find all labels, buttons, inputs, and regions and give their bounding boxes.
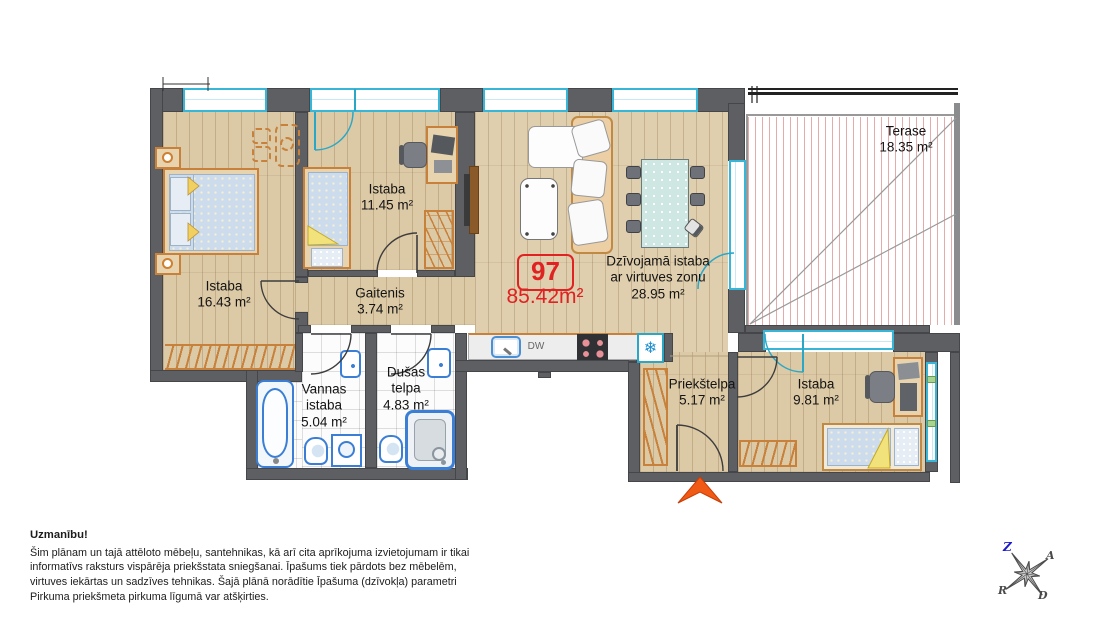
apartment-total-area: 85.42m²	[506, 285, 583, 309]
room-area: 3.74 m²	[355, 302, 405, 318]
washer-drum-icon	[338, 441, 355, 458]
mattress	[827, 428, 891, 466]
lamp-icon	[162, 152, 173, 163]
terrace-edge	[748, 88, 958, 90]
terrace-edge	[954, 103, 960, 325]
wall-segment	[150, 88, 163, 382]
pillow	[894, 428, 919, 466]
wall-segment	[455, 333, 467, 480]
window	[483, 88, 568, 112]
dining-chair	[690, 166, 705, 179]
toilet	[379, 435, 403, 463]
wall-segment	[738, 333, 766, 352]
room-name: Istaba	[793, 377, 839, 393]
room-label-bedroom3: Istaba 9.81 m²	[793, 377, 839, 410]
coffee-table	[520, 178, 558, 240]
room-area: 5.04 m²	[301, 414, 347, 430]
terrace-edge	[746, 114, 748, 325]
wall-segment	[431, 325, 455, 333]
dishwasher-label: DW	[528, 341, 545, 353]
room-area: 5.17 m²	[669, 393, 736, 409]
terrace-door	[729, 160, 746, 290]
compass-west-label: R	[998, 584, 1007, 597]
tv-icon	[464, 174, 470, 226]
floor-plan: DW ❄	[0, 0, 1110, 624]
room-name: Dzīvojamā istaba	[606, 253, 710, 269]
room-area: 16.43 m²	[197, 295, 250, 311]
dining-table	[641, 159, 689, 248]
room-name: Dušas	[383, 364, 429, 380]
wall-segment	[295, 333, 303, 372]
laptop-icon	[431, 135, 455, 156]
room-label-entry: Priekštelpa 5.17 m²	[669, 377, 736, 410]
bedroom1-door-floor	[295, 283, 308, 312]
mattress	[308, 172, 348, 246]
bathroom-sink	[340, 350, 361, 378]
window	[612, 88, 698, 112]
single-bed	[822, 423, 922, 471]
wardrobe-rail	[165, 344, 295, 370]
sofa-cushion	[567, 198, 609, 246]
wardrobe	[424, 210, 454, 269]
fridge: ❄	[637, 333, 664, 363]
pillow	[170, 177, 191, 211]
shower-head-icon	[441, 460, 446, 465]
wall-segment	[664, 333, 673, 362]
wall-segment	[308, 270, 378, 277]
room-name: Vannas	[301, 381, 347, 397]
wall-segment	[365, 333, 377, 468]
bedroom3-terrace-window	[763, 330, 894, 350]
toilet	[304, 437, 328, 465]
kitchen-sink	[491, 336, 521, 358]
bathtub	[256, 380, 294, 468]
room-label-bedroom2: Istaba 11.45 m²	[361, 182, 413, 215]
room-label-bathroom: Vannas istaba 5.04 m²	[301, 381, 347, 430]
wall-segment	[628, 362, 640, 482]
wall-segment	[893, 333, 960, 352]
desk-items-icon	[897, 362, 920, 380]
dashed-chair	[252, 128, 271, 144]
room-label-terrace: Terase 18.35 m²	[879, 124, 932, 157]
dining-chair	[626, 220, 641, 233]
wall-segment	[728, 289, 745, 333]
shower-cabin	[405, 410, 455, 470]
disclaimer: Uzmanību! Šim plānam un tajā attēloto mē…	[30, 528, 478, 605]
pillow	[311, 248, 343, 267]
sofa-cushion	[570, 158, 608, 198]
bed-divider	[193, 174, 194, 251]
room-name: Gaitenis	[355, 286, 405, 302]
wall-segment	[455, 360, 640, 372]
window-balcony-door	[310, 88, 440, 112]
room-name2: istaba	[301, 398, 347, 414]
wall-segment	[728, 103, 745, 161]
window	[183, 88, 267, 112]
room-label-bedroom1: Istaba 16.43 m²	[197, 279, 250, 312]
room-name: Priekštelpa	[669, 377, 736, 393]
dashed-chair	[280, 137, 294, 151]
dining-chair	[626, 193, 641, 206]
wall-segment	[295, 277, 308, 283]
dining-chair	[690, 193, 705, 206]
wall-segment	[298, 325, 311, 333]
shower-sink	[427, 348, 451, 378]
bathtub-inner	[262, 388, 288, 458]
terrace-edge	[748, 92, 958, 95]
room-area: 28.95 m²	[606, 286, 710, 302]
lamp-icon	[162, 258, 173, 269]
wall-segment	[538, 372, 551, 378]
compass-east-label: A	[1046, 549, 1055, 562]
vent-mark	[927, 376, 936, 383]
desk	[893, 357, 923, 417]
wardrobe-rail	[739, 440, 797, 467]
wall-segment	[440, 88, 483, 112]
wall-segment	[628, 472, 930, 482]
wall-segment	[266, 88, 310, 112]
office-chair	[869, 371, 895, 403]
wall-segment	[728, 352, 738, 472]
double-bed	[163, 168, 259, 255]
room-name: Istaba	[361, 182, 413, 198]
vent-mark	[927, 420, 936, 427]
dining-chair	[626, 166, 641, 179]
shower-drain-icon	[432, 447, 446, 461]
pillow	[170, 213, 191, 246]
room-area: 9.81 m²	[793, 393, 839, 409]
room-label-hallway: Gaitenis 3.74 m²	[355, 286, 405, 319]
drain-icon	[273, 458, 279, 464]
dashed-chair	[252, 146, 271, 162]
washing-machine	[331, 434, 362, 467]
stove	[577, 334, 608, 360]
monitor-icon	[900, 383, 917, 411]
chair-back	[865, 375, 870, 399]
room-label-living: Dzīvojamā istaba ar virtuves zonu 28.95 …	[606, 253, 710, 302]
room-name2: ar virtuves zonu	[606, 270, 710, 286]
freezer-icon: ❄	[644, 340, 657, 357]
compass-north-label: Z	[1003, 540, 1012, 554]
room-name: Terase	[879, 124, 932, 140]
tv-panel	[469, 166, 479, 234]
chair-back	[399, 145, 404, 165]
wall-segment	[567, 88, 612, 112]
disclaimer-title: Uzmanību!	[30, 528, 478, 544]
compass-south-label: D	[1038, 589, 1048, 602]
single-bed	[303, 167, 351, 269]
terrace-edge	[748, 114, 956, 116]
room-area: 4.83 m²	[383, 397, 429, 413]
desk	[426, 126, 458, 184]
coat-closet	[643, 368, 668, 466]
room-name2: telpa	[383, 381, 429, 397]
wall-segment	[950, 352, 960, 483]
room-label-shower: Dušas telpa 4.83 m²	[383, 364, 429, 413]
room-name: Istaba	[197, 279, 250, 295]
wall-segment	[351, 325, 391, 333]
office-chair	[403, 142, 427, 168]
room-area: 18.35 m²	[879, 140, 932, 156]
room-area: 11.45 m²	[361, 198, 413, 214]
disclaimer-body: Šim plānam un tajā attēloto mēbeļu, sant…	[30, 547, 469, 604]
papers-icon	[434, 160, 452, 173]
wall-segment	[417, 270, 455, 277]
